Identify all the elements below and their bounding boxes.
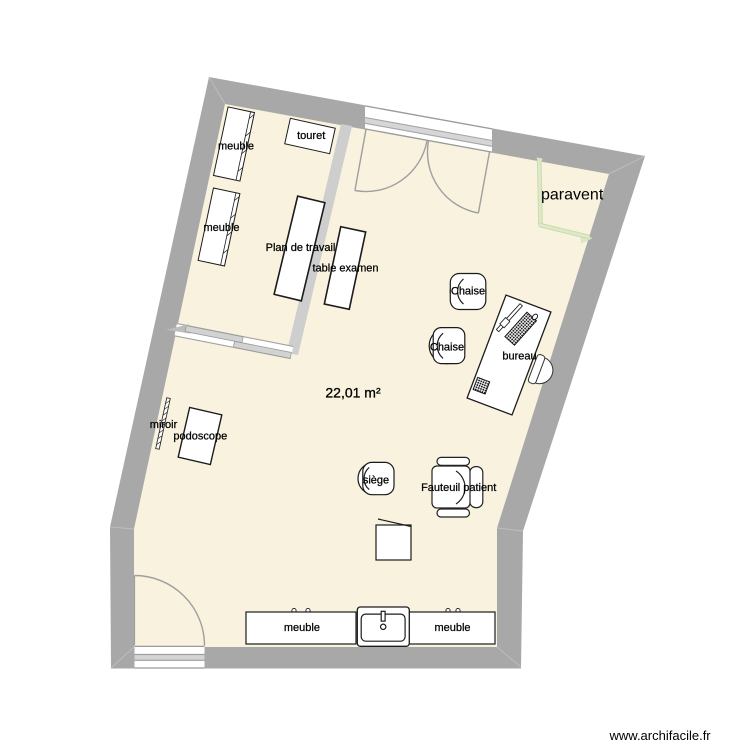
- svg-text:meuble: meuble: [434, 622, 470, 634]
- svg-text:Chaise: Chaise: [451, 286, 485, 298]
- svg-text:bureau: bureau: [502, 350, 536, 362]
- svg-text:Chaise: Chaise: [430, 342, 464, 354]
- svg-text:table examen: table examen: [312, 263, 378, 275]
- svg-text:www.archifacile.fr: www.archifacile.fr: [609, 728, 712, 743]
- svg-text:paravent: paravent: [541, 187, 604, 204]
- svg-text:Plan de travail: Plan de travail: [266, 242, 336, 254]
- svg-text:siège: siège: [363, 475, 389, 487]
- svg-text:meuble: meuble: [218, 141, 254, 153]
- svg-text:meuble: meuble: [203, 222, 239, 234]
- svg-text:Fauteuil patient: Fauteuil patient: [421, 482, 496, 494]
- svg-text:meuble: meuble: [284, 622, 320, 634]
- svg-text:miroir: miroir: [150, 419, 178, 431]
- svg-text:22,01 m²: 22,01 m²: [325, 385, 381, 401]
- svg-text:touret: touret: [297, 130, 325, 142]
- svg-text:podoscope: podoscope: [173, 431, 227, 443]
